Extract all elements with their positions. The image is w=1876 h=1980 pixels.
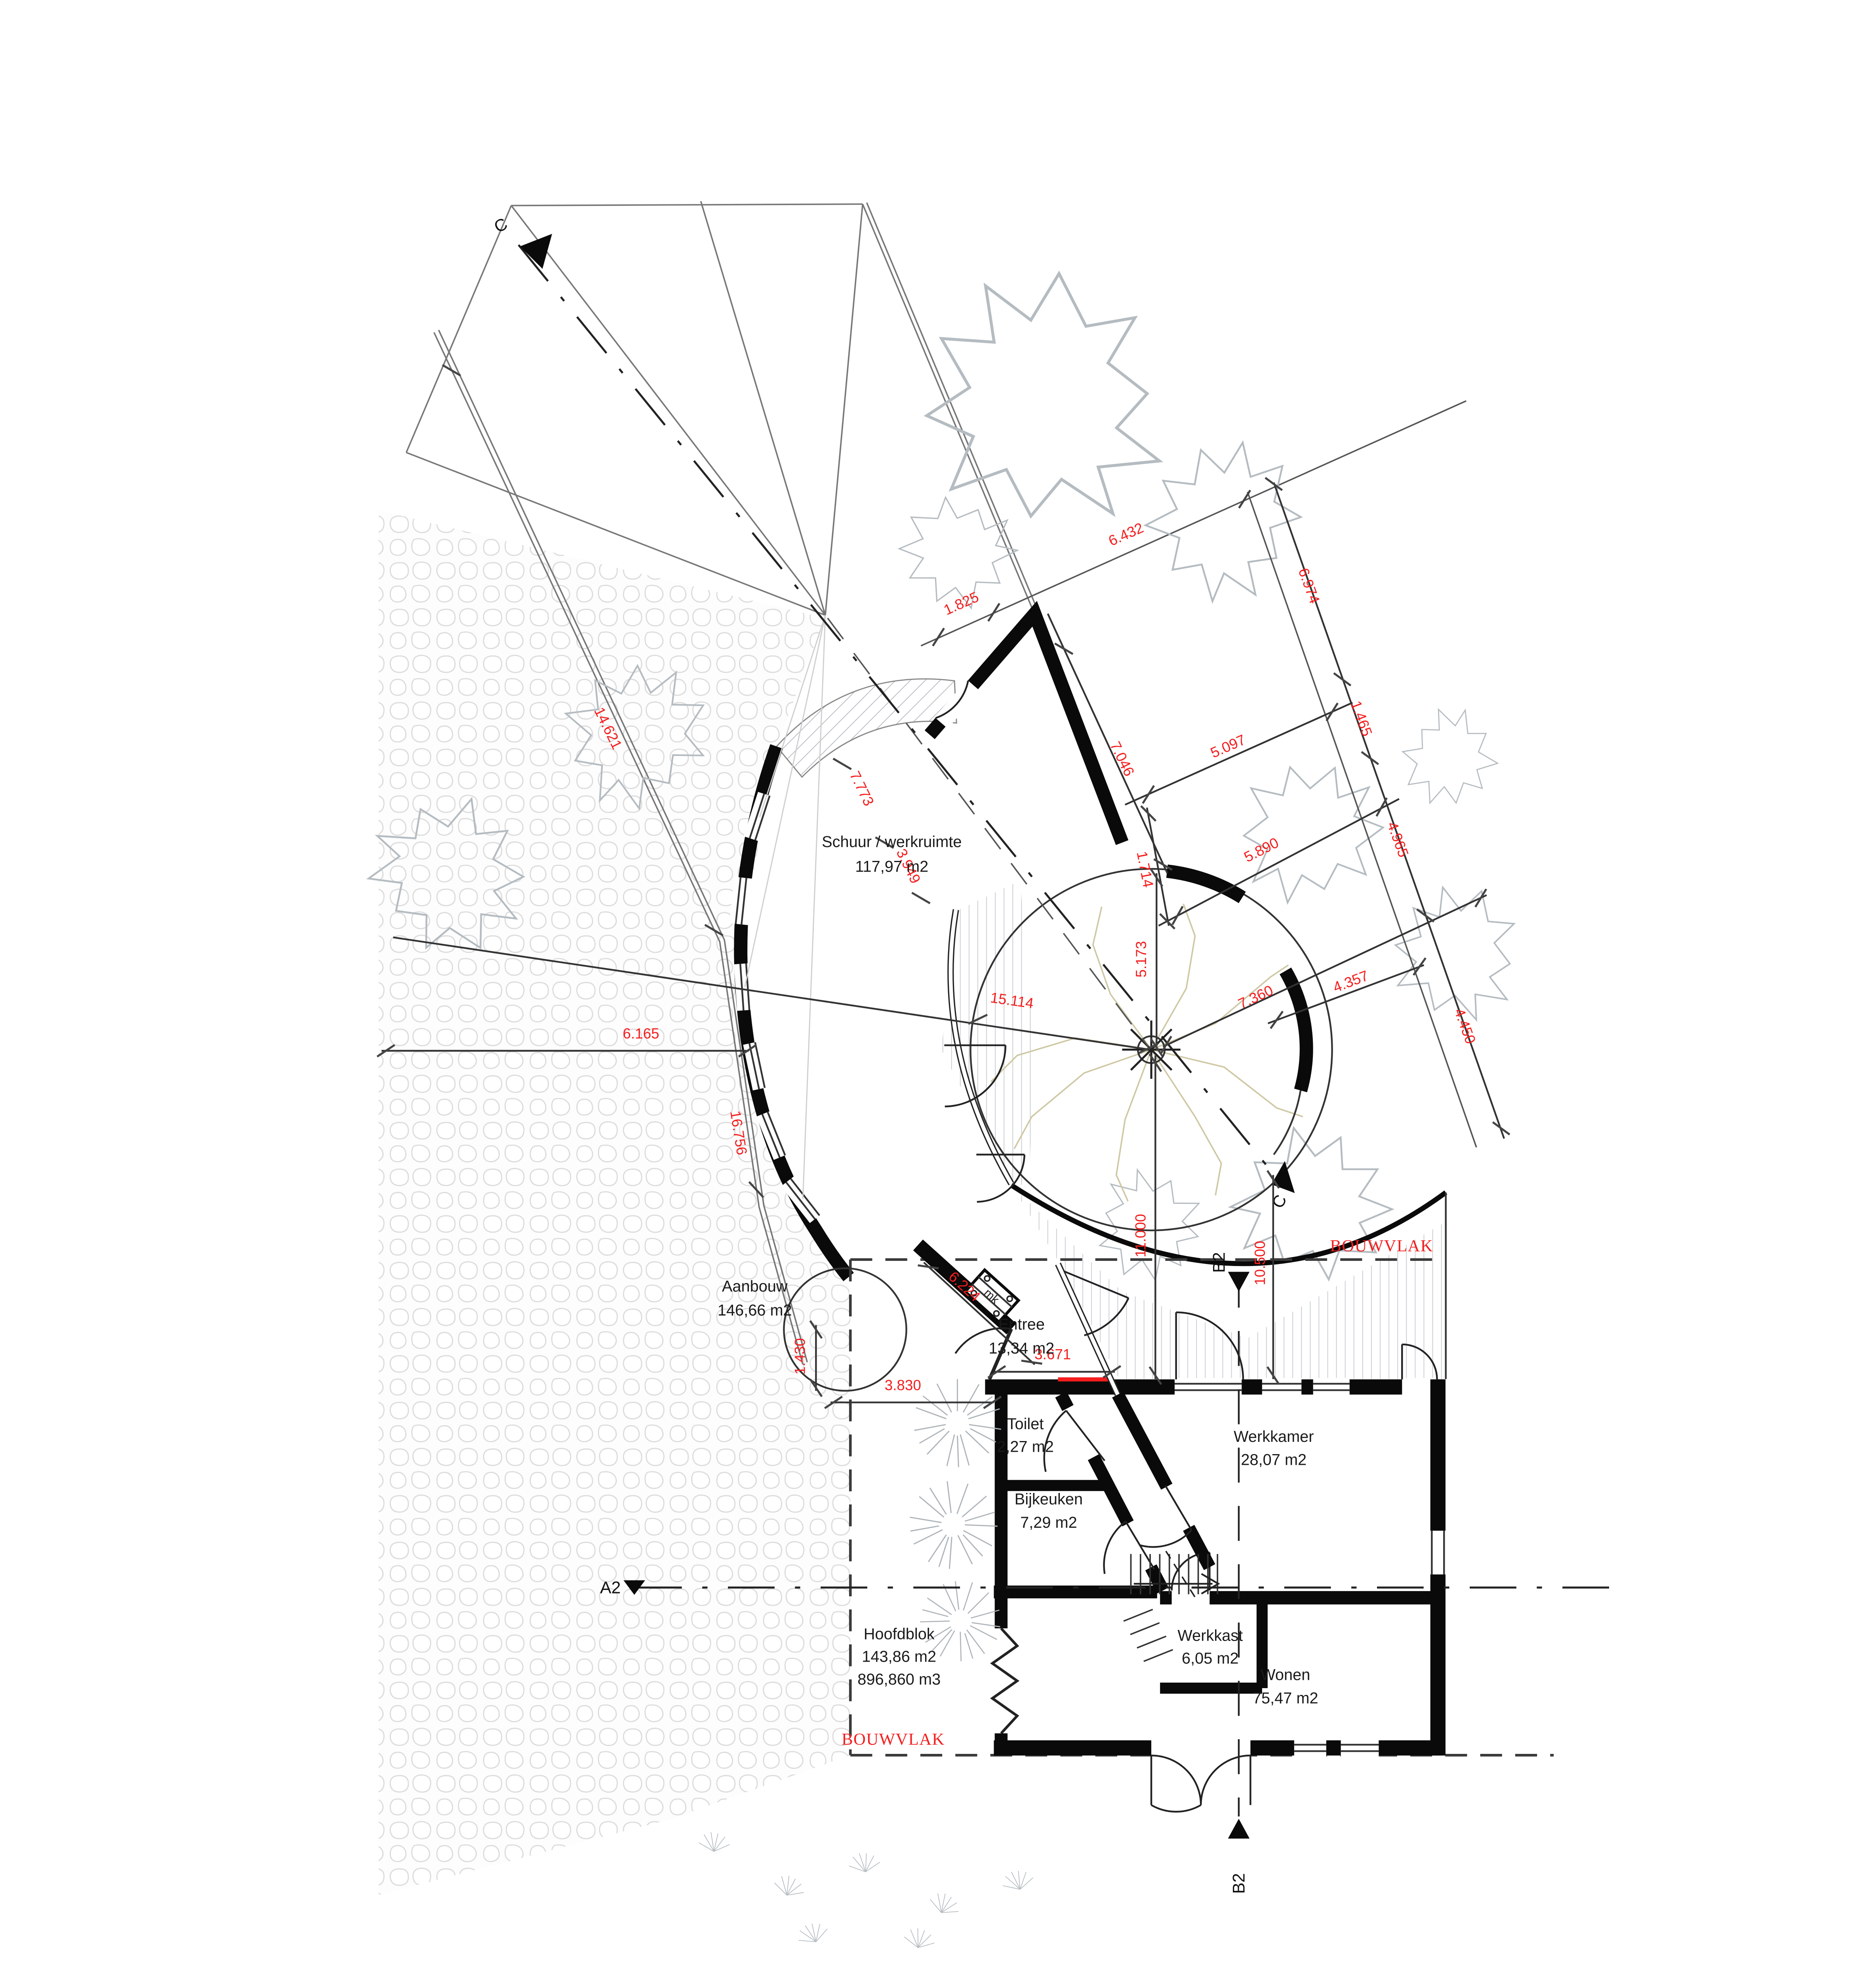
werkkamer-name: Werkkamer	[1234, 1428, 1314, 1445]
toilet-area: 2,27 m2	[997, 1438, 1054, 1456]
dim-10500: 10.500	[1252, 1241, 1268, 1285]
werkkamer-area: 28,07 m2	[1241, 1451, 1307, 1469]
werkkast-area: 6,05 m2	[1182, 1650, 1239, 1667]
werkkast-name: Werkkast	[1177, 1627, 1243, 1645]
section-b2-label-bottom: B2	[1230, 1873, 1249, 1894]
dim-11000: 11.000	[1132, 1214, 1148, 1257]
dim-1430: 1.430	[792, 1338, 808, 1375]
dim-5173: 5.173	[1133, 941, 1149, 977]
site-plan-drawing: BOUWVLAK BOUWVLAK	[0, 0, 1876, 1980]
east-wall-window	[1429, 1531, 1447, 1574]
section-b2-label-top: B2	[1210, 1252, 1229, 1273]
bouwvlak-label-east: BOUWVLAK	[1330, 1237, 1433, 1255]
section-a2-label: A2	[600, 1578, 621, 1597]
schuur-name: Schuur / werkruimte	[822, 833, 962, 851]
floor-plan-canvas: BOUWVLAK BOUWVLAK	[0, 0, 1876, 1980]
schuur-area: 117,97 m2	[855, 858, 928, 875]
dim-3830: 3.830	[885, 1377, 921, 1394]
entree-area: 13,34 m2	[989, 1340, 1055, 1357]
wonen-area: 75,47 m2	[1253, 1689, 1318, 1707]
bijkeuken-name: Bijkeuken	[1015, 1491, 1083, 1508]
bijkeuken-area: 7,29 m2	[1020, 1514, 1077, 1531]
wonen-name: Wonen	[1261, 1666, 1310, 1683]
entree-name: Entree	[998, 1316, 1045, 1333]
hoofdblok-name: Hoofdblok	[864, 1625, 935, 1643]
aanbouw-area: 146,66 m2	[718, 1302, 792, 1319]
hoofdblok-volume: 896,860 m3	[857, 1671, 941, 1688]
bouwvlak-label-south: BOUWVLAK	[842, 1730, 945, 1749]
aanbouw-name: Aanbouw	[722, 1278, 788, 1295]
hoofdblok-area: 143,86 m2	[862, 1648, 936, 1666]
toilet-name: Toilet	[1007, 1415, 1044, 1433]
dim-6165: 6.165	[623, 1026, 659, 1042]
